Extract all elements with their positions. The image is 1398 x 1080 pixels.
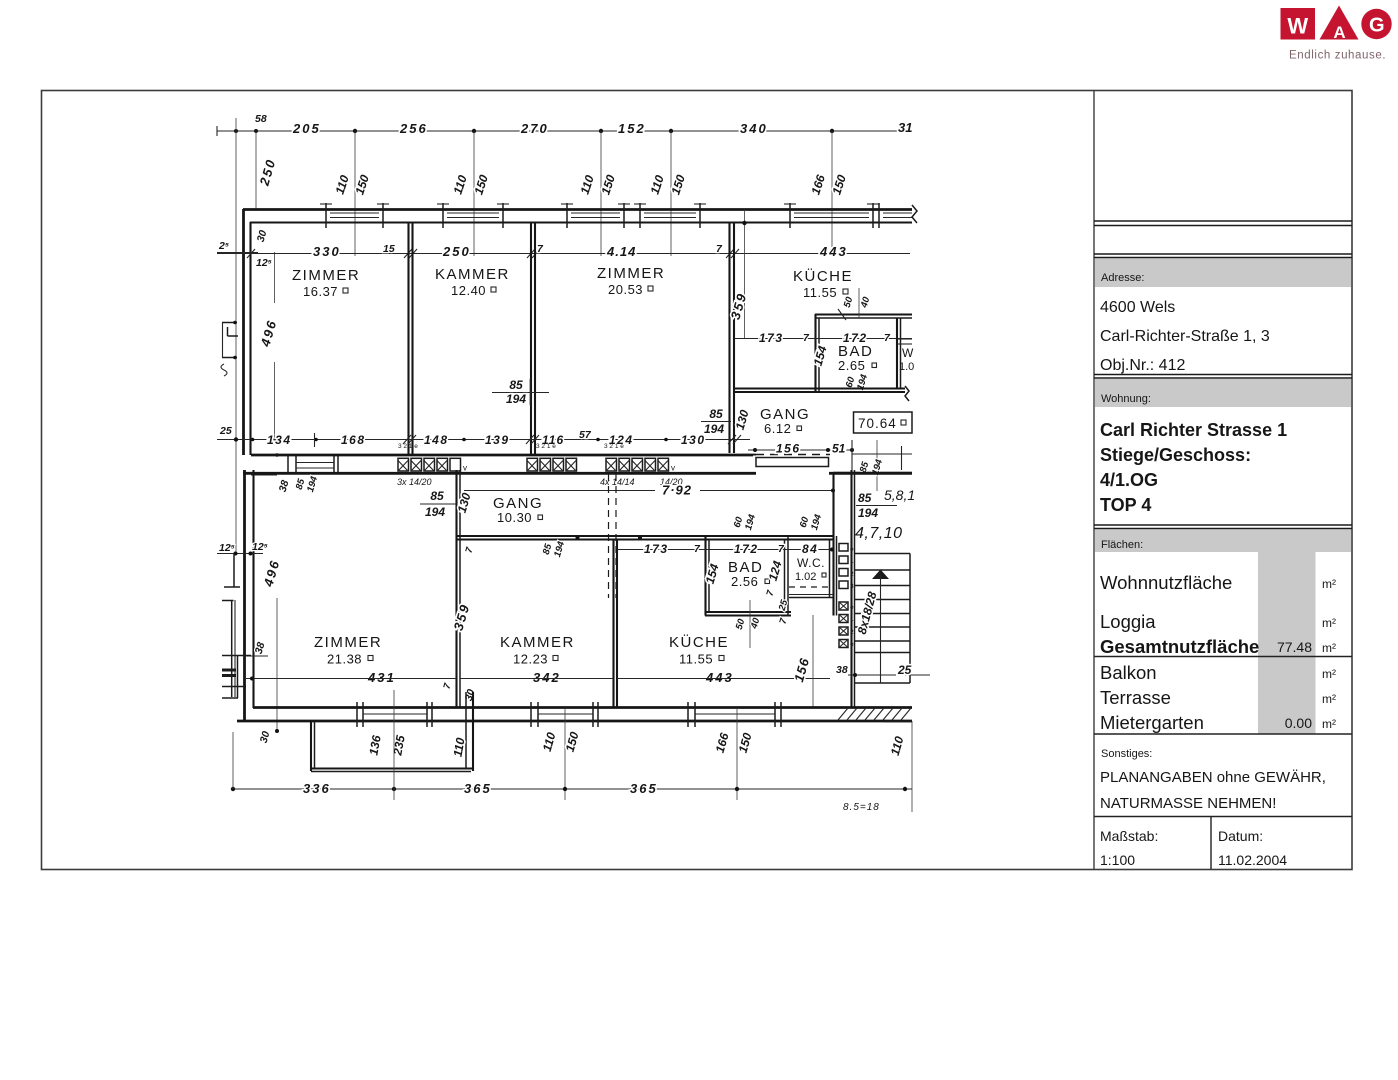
svg-text:m²: m²	[1322, 717, 1336, 731]
svg-text:1.0: 1.0	[899, 361, 914, 373]
svg-text:11.55: 11.55	[803, 285, 837, 300]
svg-text:ZIMMER: ZIMMER	[597, 265, 665, 282]
svg-text:85: 85	[509, 378, 523, 392]
svg-text:5,8,1: 5,8,1	[884, 487, 915, 503]
svg-text:7·92: 7·92	[662, 483, 692, 498]
svg-text:G: G	[1369, 15, 1385, 37]
svg-text:4600 Wels: 4600 Wels	[1100, 299, 1175, 316]
svg-text:330: 330	[313, 244, 341, 259]
svg-text:173: 173	[644, 542, 669, 556]
svg-text:Adresse:: Adresse:	[1101, 272, 1144, 284]
svg-text:Sonstiges:: Sonstiges:	[1101, 748, 1152, 760]
svg-text:3: 3	[850, 583, 854, 590]
svg-text:4,7,10: 4,7,10	[855, 525, 902, 542]
svg-text:4.14: 4.14	[606, 244, 636, 259]
svg-text:20.53: 20.53	[608, 282, 643, 297]
svg-text:85: 85	[430, 489, 444, 503]
svg-text:3 2 1 e: 3 2 1 e	[536, 443, 556, 450]
svg-text:12⁵: 12⁵	[252, 541, 268, 553]
svg-text:51: 51	[832, 442, 846, 456]
svg-text:Endlich zuhause.: Endlich zuhause.	[1289, 50, 1386, 62]
svg-text:Carl-Richter-Straße 1, 3: Carl-Richter-Straße 1, 3	[1100, 328, 1270, 345]
svg-text:1.02: 1.02	[795, 571, 816, 583]
svg-text:m²: m²	[1322, 641, 1336, 655]
svg-text:336: 336	[303, 781, 331, 796]
svg-text:77.48: 77.48	[1277, 639, 1312, 655]
svg-text:194: 194	[704, 422, 724, 436]
svg-text:15: 15	[383, 243, 395, 255]
svg-text:12.23: 12.23	[513, 652, 548, 667]
svg-text:270: 270	[520, 121, 549, 136]
svg-text:0.00: 0.00	[1285, 715, 1312, 731]
svg-text:57: 57	[579, 429, 592, 441]
svg-text:431: 431	[367, 670, 396, 685]
svg-text:365: 365	[464, 781, 492, 796]
svg-text:11.02.2004: 11.02.2004	[1218, 852, 1287, 868]
svg-text:194: 194	[506, 392, 526, 406]
svg-text:KAMMER: KAMMER	[435, 266, 510, 283]
svg-text:16.37: 16.37	[303, 284, 338, 299]
svg-text:3 2 1 e: 3 2 1 e	[604, 443, 624, 450]
svg-text:31: 31	[898, 120, 912, 135]
svg-text:W: W	[902, 346, 914, 360]
svg-text:10.30: 10.30	[497, 510, 532, 525]
svg-text:342: 342	[533, 670, 561, 685]
svg-text:11.55: 11.55	[679, 652, 713, 667]
svg-text:84: 84	[802, 542, 818, 556]
svg-text:ZIMMER: ZIMMER	[292, 267, 360, 284]
svg-text:340: 340	[740, 121, 768, 136]
svg-text:v: v	[463, 464, 467, 473]
svg-text:256: 256	[399, 121, 428, 136]
svg-text:Datum:: Datum:	[1218, 828, 1263, 844]
svg-text:2.56: 2.56	[731, 574, 758, 589]
svg-text:2: 2	[850, 629, 854, 636]
svg-text:25: 25	[219, 425, 232, 437]
svg-text:85: 85	[709, 407, 723, 421]
svg-text:1: 1	[850, 616, 854, 623]
svg-text:v: v	[671, 464, 675, 473]
svg-text:4x 14/14: 4x 14/14	[600, 477, 635, 487]
svg-text:85: 85	[858, 491, 872, 505]
svg-text:134: 134	[267, 433, 292, 447]
svg-text:KÜCHE: KÜCHE	[669, 633, 729, 651]
svg-text:Stiege/Geschoss:: Stiege/Geschoss:	[1100, 445, 1251, 465]
svg-text:152: 152	[618, 121, 646, 136]
svg-text:12⁵: 12⁵	[256, 257, 272, 269]
svg-text:PLANANGABEN ohne GEWÄHR,: PLANANGABEN ohne GEWÄHR,	[1100, 769, 1326, 786]
svg-text:3x 14/20: 3x 14/20	[397, 477, 432, 487]
svg-text:365: 365	[630, 781, 658, 796]
svg-text:e: e	[850, 604, 854, 611]
svg-text:4/1.OG: 4/1.OG	[1100, 470, 1158, 490]
svg-text:12⁵: 12⁵	[219, 542, 235, 554]
svg-text:139: 139	[485, 433, 510, 447]
svg-text:250: 250	[442, 244, 471, 259]
svg-text:m²: m²	[1322, 577, 1336, 591]
svg-text:194: 194	[858, 506, 878, 520]
svg-text:Obj.Nr.: 412: Obj.Nr.: 412	[1100, 357, 1185, 374]
svg-text:12.40: 12.40	[451, 283, 486, 298]
svg-text:38: 38	[836, 664, 848, 676]
svg-text:8.5=18: 8.5=18	[843, 802, 880, 813]
svg-text:443: 443	[705, 670, 734, 685]
svg-text:e: e	[850, 546, 854, 553]
svg-text:ZIMMER: ZIMMER	[314, 634, 382, 651]
svg-text:2: 2	[850, 571, 854, 578]
svg-text:205: 205	[292, 121, 321, 136]
svg-text:m²: m²	[1322, 692, 1336, 706]
svg-text:TOP 4: TOP 4	[1100, 495, 1151, 515]
svg-text:KÜCHE: KÜCHE	[793, 267, 853, 285]
svg-text:KAMMER: KAMMER	[500, 634, 575, 651]
svg-text:e: e	[850, 641, 854, 648]
svg-text:1:100: 1:100	[1100, 852, 1135, 868]
svg-text:Mietergarten: Mietergarten	[1100, 712, 1204, 733]
svg-text:Wohnung:: Wohnung:	[1101, 393, 1151, 405]
svg-text:Gesamtnutzfläche: Gesamtnutzfläche	[1100, 636, 1259, 657]
svg-text:3 2 1 e: 3 2 1 e	[398, 443, 418, 450]
svg-text:m²: m²	[1322, 616, 1336, 630]
svg-text:Flächen:: Flächen:	[1101, 539, 1143, 551]
svg-text:172: 172	[734, 542, 759, 556]
svg-text:6.12: 6.12	[764, 421, 791, 436]
svg-text:25: 25	[897, 663, 912, 677]
svg-text:Wohnnutzfläche: Wohnnutzfläche	[1100, 572, 1232, 593]
svg-text:2.65: 2.65	[838, 358, 865, 373]
svg-text:NATURMASSE NEHMEN!: NATURMASSE NEHMEN!	[1100, 795, 1276, 812]
svg-text:W: W	[1287, 14, 1308, 39]
svg-text:70.64: 70.64	[858, 416, 897, 431]
svg-text:130: 130	[681, 433, 706, 447]
svg-text:Carl Richter Strasse 1: Carl Richter Strasse 1	[1100, 420, 1287, 440]
svg-text:1: 1	[850, 558, 854, 565]
svg-text:W.C.: W.C.	[797, 556, 825, 570]
svg-text:156: 156	[776, 442, 801, 456]
svg-text:A: A	[1333, 23, 1345, 42]
svg-text:168: 168	[341, 433, 366, 447]
svg-text:21.38: 21.38	[327, 652, 362, 667]
svg-text:148: 148	[424, 433, 449, 447]
svg-text:Maßstab:: Maßstab:	[1100, 828, 1158, 844]
svg-text:Balkon: Balkon	[1100, 662, 1157, 683]
svg-text:194: 194	[425, 505, 445, 519]
svg-text:173: 173	[759, 331, 784, 345]
svg-text:m²: m²	[1322, 667, 1336, 681]
svg-text:Terrasse: Terrasse	[1100, 687, 1171, 708]
svg-text:58: 58	[255, 113, 267, 125]
svg-text:443: 443	[819, 244, 848, 259]
svg-text:2⁵: 2⁵	[218, 240, 229, 252]
svg-text:Loggia: Loggia	[1100, 611, 1156, 632]
